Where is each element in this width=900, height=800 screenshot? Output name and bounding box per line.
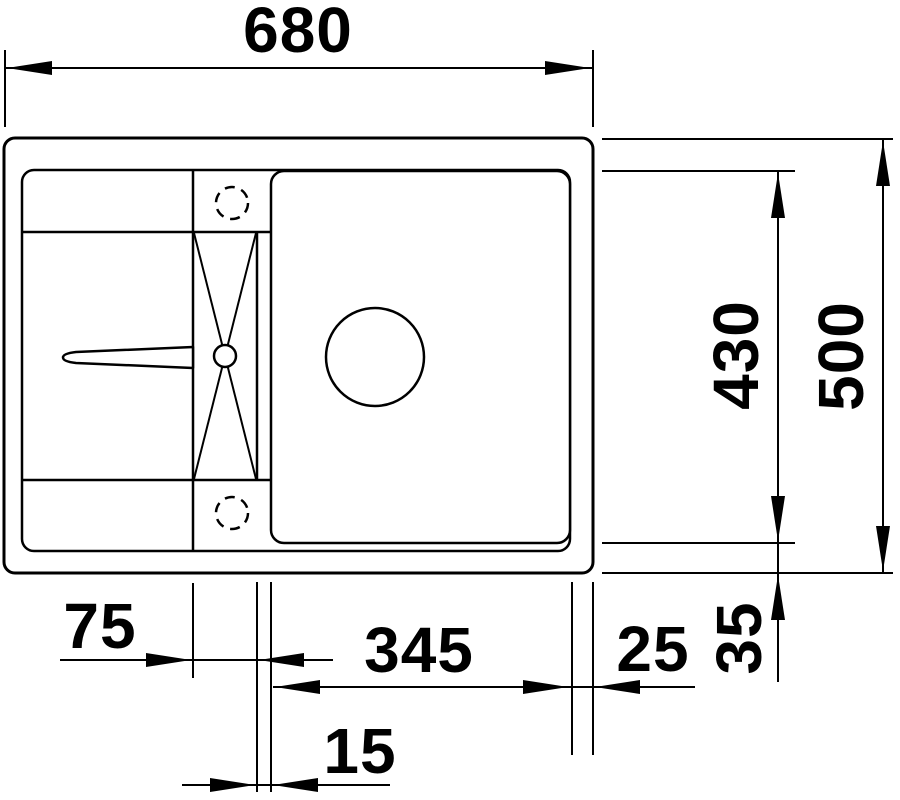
dim-label-bowl-length: 430 xyxy=(700,300,772,410)
dim-75: 75 xyxy=(60,583,333,678)
drawing-canvas: 680 500 430 35 75 345 xyxy=(0,0,900,800)
arrowhead-up xyxy=(876,141,890,186)
arrowhead-left xyxy=(273,778,318,792)
sink-technical-drawing: 680 500 430 35 75 345 xyxy=(0,0,900,800)
arrowhead-right xyxy=(210,778,255,792)
arrowhead-right xyxy=(146,653,191,667)
tap-hole-top-dashed-circle xyxy=(216,187,248,219)
arrowhead-up xyxy=(771,173,785,218)
arrowhead-right xyxy=(545,61,590,75)
arrowhead-down xyxy=(876,526,890,571)
tap-hole-bottom-dashed-circle xyxy=(216,497,248,529)
sink-plan xyxy=(4,138,593,573)
dim-35: 35 xyxy=(703,543,785,682)
arrowhead-left xyxy=(275,680,320,694)
dim-label-step-width: 15 xyxy=(323,715,396,787)
dim-label-bowl-width: 345 xyxy=(364,614,474,686)
drain-hole-circle xyxy=(326,308,424,406)
dim-25: 25 xyxy=(572,582,690,755)
arrowhead-left xyxy=(259,653,304,667)
dim-label-ledge-width: 75 xyxy=(63,590,136,662)
dim-label-overall-width: 680 xyxy=(243,0,353,66)
dim-label-bottom-gap: 35 xyxy=(703,601,775,674)
tap-lever xyxy=(63,347,193,368)
arrowhead-down xyxy=(771,496,785,541)
dim-680: 680 xyxy=(5,0,593,127)
tap-pivot-circle xyxy=(214,345,236,367)
arrowhead-right xyxy=(523,680,568,694)
dim-label-right-gap: 25 xyxy=(616,613,689,685)
dim-label-overall-depth: 500 xyxy=(805,301,877,411)
arrowhead-left xyxy=(7,61,52,75)
dim-430: 430 xyxy=(602,171,795,543)
